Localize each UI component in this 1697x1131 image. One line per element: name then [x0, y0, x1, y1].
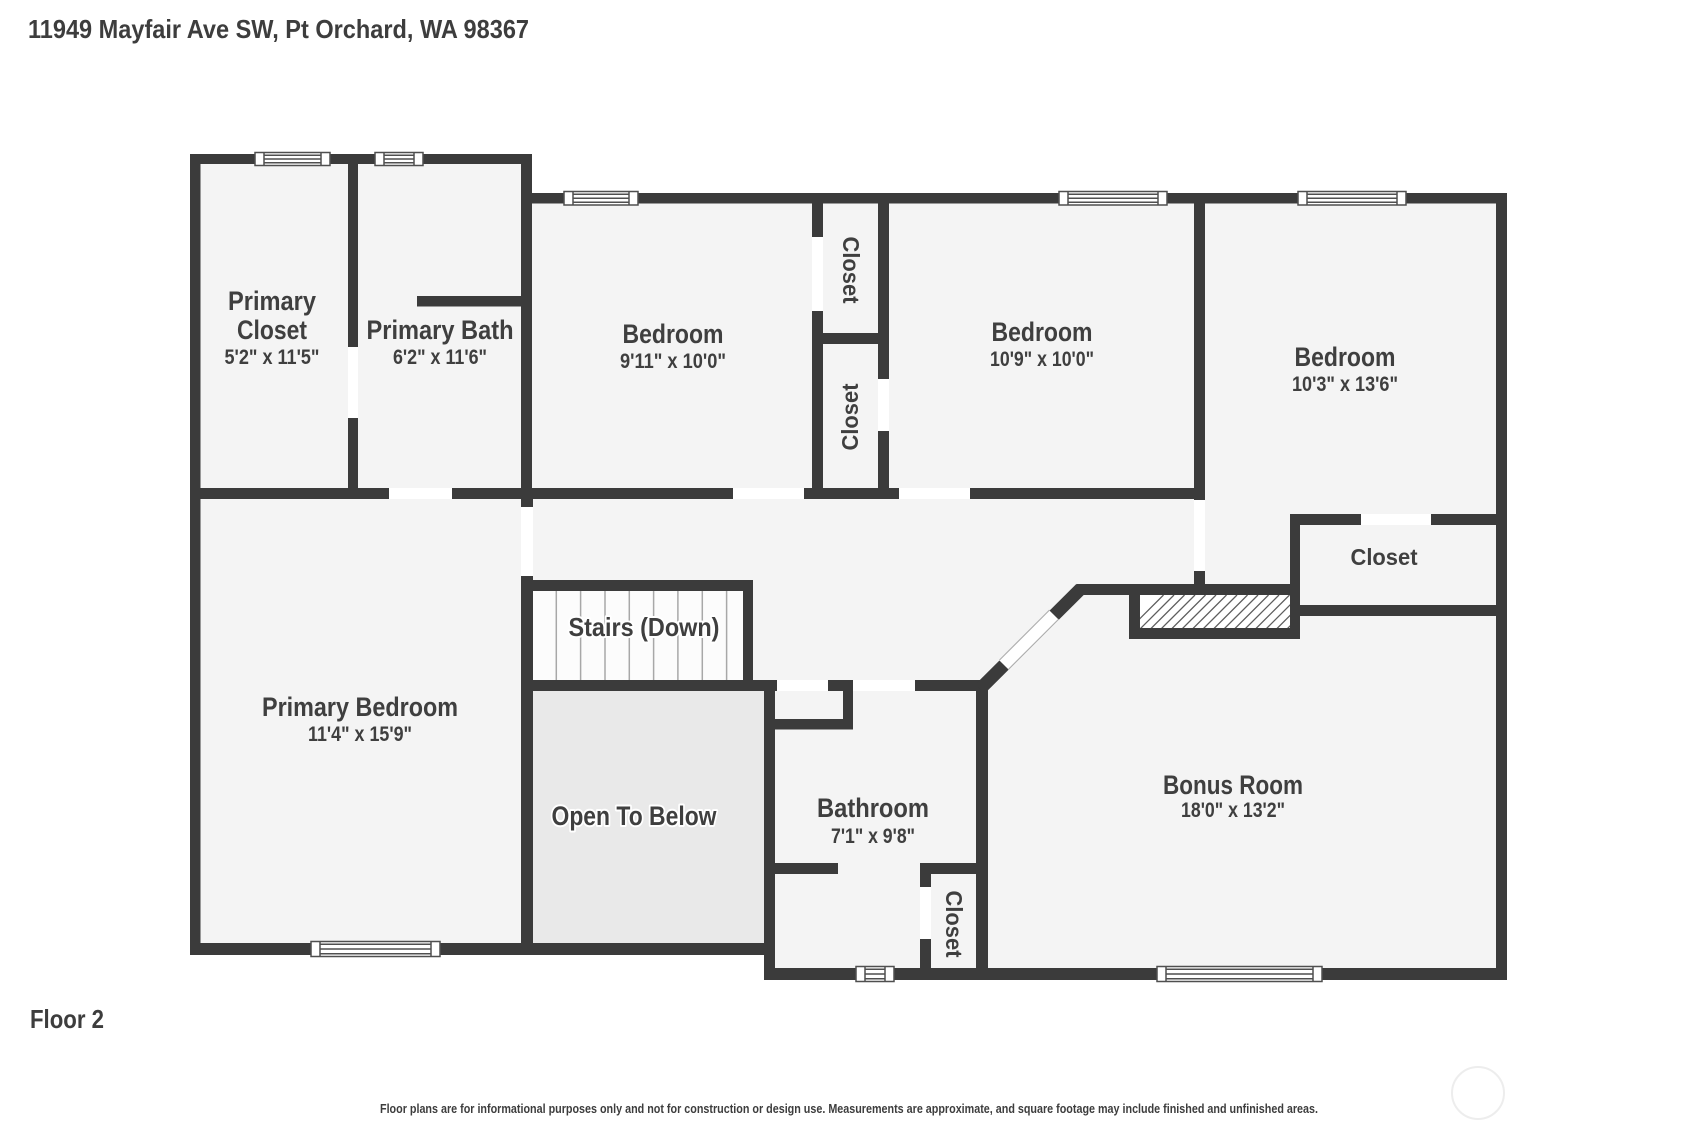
- svg-text:Bonus Room: Bonus Room: [1163, 770, 1303, 800]
- svg-text:Bathroom: Bathroom: [817, 793, 929, 823]
- svg-text:Stairs (Down): Stairs (Down): [569, 612, 720, 642]
- svg-text:Closet: Closet: [237, 315, 307, 345]
- svg-text:Closet: Closet: [838, 237, 864, 304]
- svg-text:Closet: Closet: [941, 891, 967, 958]
- svg-text:Floor plans are for informatio: Floor plans are for informational purpos…: [380, 1102, 1318, 1116]
- svg-text:11949 Mayfair Ave SW, Pt Orcha: 11949 Mayfair Ave SW, Pt Orchard, WA 983…: [28, 14, 529, 44]
- svg-text:Bedroom: Bedroom: [623, 319, 724, 349]
- svg-text:Primary Bath: Primary Bath: [367, 315, 514, 345]
- svg-text:10'9" x 10'0": 10'9" x 10'0": [990, 348, 1094, 371]
- svg-text:10'3" x 13'6": 10'3" x 13'6": [1292, 373, 1398, 396]
- svg-text:Closet: Closet: [1351, 544, 1418, 570]
- svg-text:18'0" x 13'2": 18'0" x 13'2": [1181, 799, 1285, 822]
- svg-text:Primary Bedroom: Primary Bedroom: [262, 692, 458, 722]
- svg-text:Closet: Closet: [837, 383, 863, 450]
- svg-text:Floor 2: Floor 2: [30, 1004, 104, 1034]
- svg-text:6'2" x 11'6": 6'2" x 11'6": [393, 346, 487, 369]
- svg-text:5'2" x 11'5": 5'2" x 11'5": [225, 346, 320, 369]
- svg-text:11'4" x 15'9": 11'4" x 15'9": [308, 723, 412, 746]
- svg-text:Primary: Primary: [228, 286, 316, 316]
- svg-text:9'11" x 10'0": 9'11" x 10'0": [620, 350, 726, 373]
- svg-text:Open To Below: Open To Below: [552, 801, 718, 831]
- svg-text:Bedroom: Bedroom: [1295, 342, 1396, 372]
- svg-text:Bedroom: Bedroom: [992, 317, 1093, 347]
- svg-text:7'1" x 9'8": 7'1" x 9'8": [831, 825, 915, 848]
